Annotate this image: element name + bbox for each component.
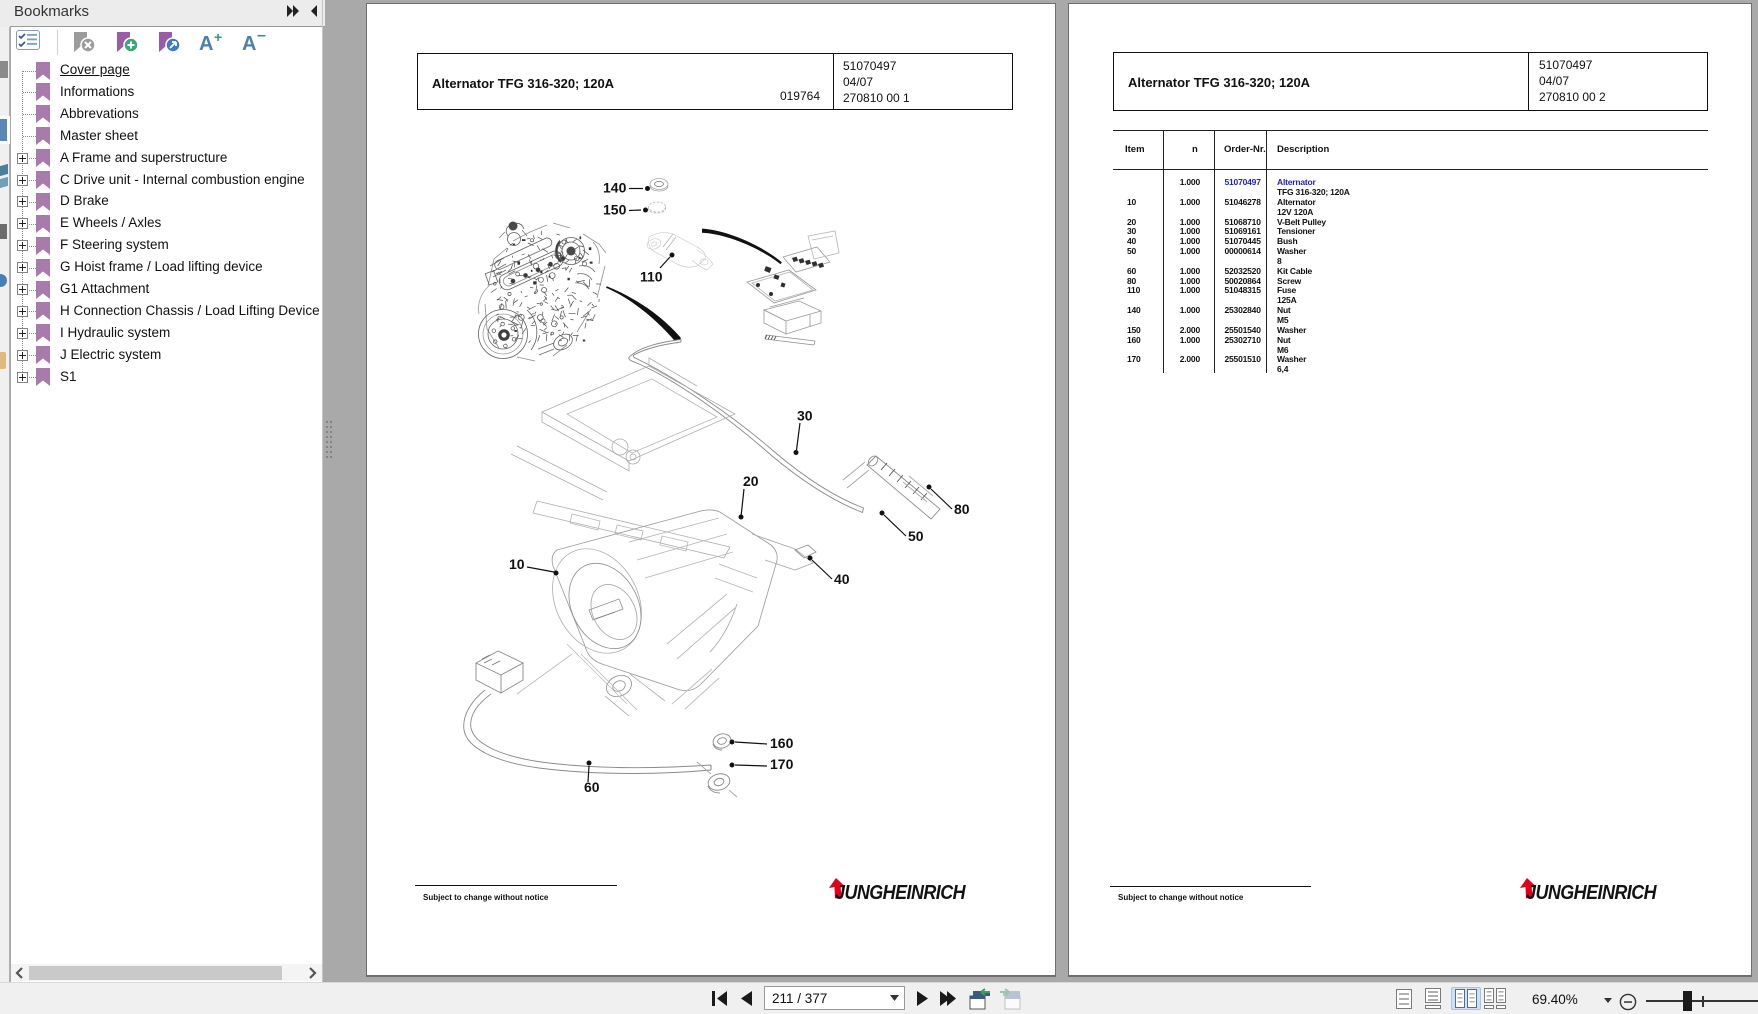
svg-text:60: 60 [584,779,600,795]
svg-text:40: 40 [834,571,850,587]
svg-text:10: 10 [509,556,525,572]
svg-text:20: 20 [743,473,759,489]
svg-text:30: 30 [797,408,813,424]
svg-text:110: 110 [640,269,663,285]
svg-text:50: 50 [908,528,924,544]
svg-text:170: 170 [770,756,794,772]
svg-text:150: 150 [603,202,627,218]
svg-text:JUNGHEINRICH: JUNGHEINRICH [1526,882,1658,904]
svg-text:140: 140 [603,180,627,196]
svg-text:80: 80 [954,501,970,517]
svg-text:160: 160 [770,735,794,751]
svg-text:JUNGHEINRICH: JUNGHEINRICH [835,882,967,904]
